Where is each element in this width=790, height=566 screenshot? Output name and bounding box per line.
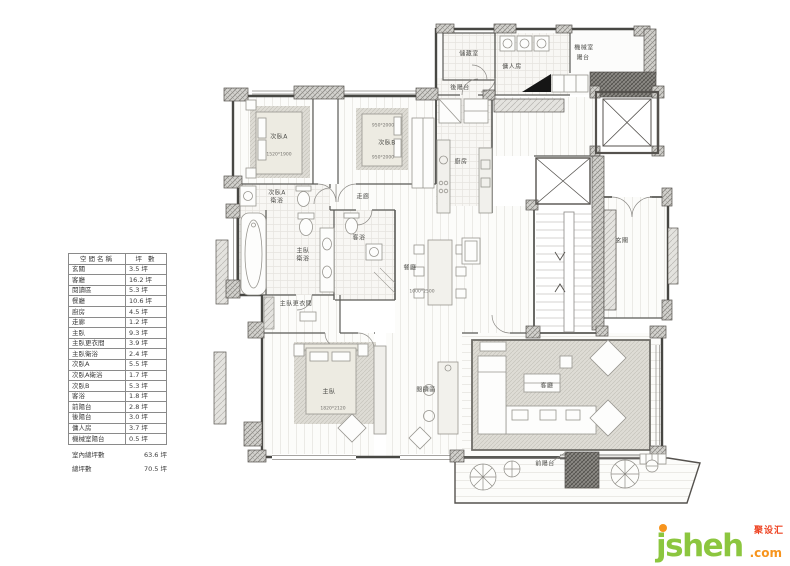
label-storage: 儲藏室: [459, 49, 479, 58]
room-name-cell: 機械室陽台: [69, 434, 126, 445]
label-dining-dim: 1000*2500: [409, 290, 434, 295]
room-area-cell: 3.5 坪: [126, 264, 167, 275]
room-area-cell: 5.3 坪: [126, 285, 167, 296]
table-row: 客廳16.2 坪: [69, 275, 167, 286]
table-row: 主臥更衣間3.9 坪: [69, 338, 167, 349]
room-name-cell: 次臥A衛浴: [69, 370, 126, 381]
floor-plan-page: 儲藏室 後陽台 傭人房 機械室 陽台 次臥A 1520*1900 950*200…: [0, 0, 790, 566]
label-foyer: 玄關: [615, 236, 628, 245]
jsheh-logo[interactable]: jsheh 聚设汇 .com: [656, 521, 784, 561]
room-name-cell: 閱讀區: [69, 285, 126, 296]
room-area-cell: 3.9 坪: [126, 338, 167, 349]
label-bedroom-b-dim-top: 950*2000: [372, 124, 394, 129]
label-bedroom-b: 次臥B: [378, 138, 396, 147]
label-bedroom-b-dim-bottom: 950*2000: [372, 156, 394, 161]
table-row: 次臥A衛浴1.7 坪: [69, 370, 167, 381]
label-living: 客廳: [540, 381, 553, 390]
label-dining: 餐廳: [403, 263, 416, 272]
room-name-cell: 廚房: [69, 306, 126, 317]
room-area-cell: 0.5 坪: [126, 434, 167, 445]
table-row: 傭人房3.7 坪: [69, 423, 167, 434]
label-master: 主臥: [322, 387, 335, 396]
room-name-cell: 餐廳: [69, 296, 126, 307]
logo-brand-text: jsheh: [656, 532, 743, 561]
header-area-unit: 坪 數: [126, 254, 167, 265]
room-area-cell: 16.2 坪: [126, 275, 167, 286]
room-area-cell: 1.7 坪: [126, 370, 167, 381]
label-front-balcony: 前陽台: [535, 459, 555, 468]
table-row: 閱讀區5.3 坪: [69, 285, 167, 296]
label-master-closet: 主臥更衣間: [280, 299, 313, 308]
summary-grand-total: 總坪數 70.5 坪: [72, 463, 167, 473]
table-row: 前陽台2.8 坪: [69, 402, 167, 413]
room-name-cell: 前陽台: [69, 402, 126, 413]
room-name-cell: 後陽台: [69, 412, 126, 423]
label-master-bath-2: 衛浴: [296, 254, 309, 263]
label-bedroom-a-dim: 1520*1900: [266, 153, 291, 158]
room-area-cell: 4.5 坪: [126, 306, 167, 317]
secondary-shaft: [536, 158, 590, 204]
room-name-cell: 走廊: [69, 317, 126, 328]
table-row: 玄關3.5 坪: [69, 264, 167, 275]
room-area-cell: 10.6 坪: [126, 296, 167, 307]
room-name-cell: 玄關: [69, 264, 126, 275]
table-header-row: 空間名稱 坪 數: [69, 254, 167, 265]
summary-indoor-value: 63.6 坪: [144, 449, 167, 459]
room-name-cell: 主臥衛浴: [69, 349, 126, 360]
label-maid-room: 傭人房: [502, 62, 522, 71]
room-area-cell: 5.5 坪: [126, 359, 167, 370]
table-row: 廚房4.5 坪: [69, 306, 167, 317]
label-back-balcony: 後陽台: [450, 83, 470, 92]
table-row: 後陽台3.0 坪: [69, 412, 167, 423]
table-row: 主臥衛浴2.4 坪: [69, 349, 167, 360]
table-row: 客浴1.8 坪: [69, 391, 167, 402]
area-table: 空間名稱 坪 數 玄關3.5 坪客廳16.2 坪閱讀區5.3 坪餐廳10.6 坪…: [68, 253, 167, 445]
table-row: 餐廳10.6 坪: [69, 296, 167, 307]
room-area-cell: 9.3 坪: [126, 328, 167, 339]
label-reading: 閱讀區: [416, 385, 436, 394]
summary-indoor-label: 室內總坪數: [72, 449, 105, 459]
header-room-name: 空間名稱: [69, 254, 126, 265]
table-row: 主臥9.3 坪: [69, 328, 167, 339]
room-name-cell: 傭人房: [69, 423, 126, 434]
room-name-cell: 客浴: [69, 391, 126, 402]
label-master-dim: 1820*2120: [320, 407, 345, 412]
room-name-cell: 客廳: [69, 275, 126, 286]
room-name-cell: 次臥A: [69, 359, 126, 370]
label-guest-bath: 客浴: [352, 233, 365, 242]
room-area-cell: 3.7 坪: [126, 423, 167, 434]
table-row: 走廊1.2 坪: [69, 317, 167, 328]
room-area-cell: 5.3 坪: [126, 381, 167, 392]
label-bedroom-a-bath-2: 衛浴: [270, 196, 283, 205]
room-area-cell: 3.0 坪: [126, 412, 167, 423]
label-corridor: 走廊: [356, 192, 369, 201]
summary-total-label: 總坪數: [72, 463, 92, 473]
room-area-cell: 1.2 坪: [126, 317, 167, 328]
room-name-cell: 主臥: [69, 328, 126, 339]
summary-indoor-total: 室內總坪數 63.6 坪: [72, 449, 167, 459]
table-row: 機械室陽台0.5 坪: [69, 434, 167, 445]
table-row: 次臥B5.3 坪: [69, 381, 167, 392]
room-name-cell: 次臥B: [69, 381, 126, 392]
table-row: 次臥A5.5 坪: [69, 359, 167, 370]
label-machine-room-1: 機械室: [574, 43, 594, 52]
label-bedroom-a: 次臥A: [270, 132, 288, 141]
area-summary: 室內總坪數 63.6 坪 總坪數 70.5 坪: [72, 449, 167, 477]
elevator-shaft: [596, 92, 658, 153]
logo-chinese-name: 聚设汇: [754, 523, 784, 536]
room-name-cell: 主臥更衣間: [69, 338, 126, 349]
label-kitchen: 廚房: [454, 157, 467, 166]
logo-j-dot-icon: [659, 524, 667, 532]
summary-total-value: 70.5 坪: [144, 463, 167, 473]
room-area-cell: 1.8 坪: [126, 391, 167, 402]
logo-tld-text: .com: [750, 546, 782, 560]
room-area-cell: 2.8 坪: [126, 402, 167, 413]
room-area-cell: 2.4 坪: [126, 349, 167, 360]
label-machine-room-2: 陽台: [576, 53, 589, 62]
